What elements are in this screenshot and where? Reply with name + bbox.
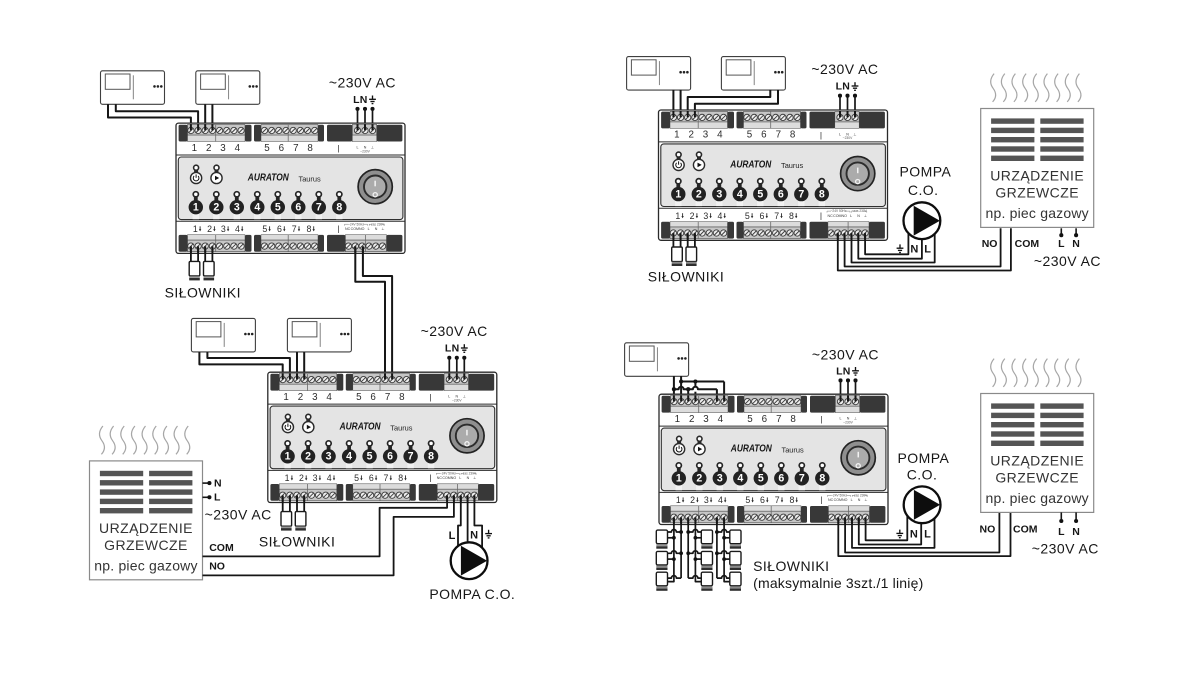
svg-text:~24V 50Hz: ~24V 50Hz (831, 209, 847, 213)
svg-text:L: L (448, 395, 450, 399)
svg-text:7: 7 (408, 451, 414, 463)
svg-text:L: L (214, 492, 221, 504)
svg-text:4: 4 (717, 211, 722, 221)
svg-text:1: 1 (676, 495, 681, 505)
svg-text:POMPA C.O.: POMPA C.O. (429, 586, 515, 602)
svg-text:1: 1 (193, 224, 198, 234)
svg-text:8: 8 (307, 143, 313, 154)
svg-text:5: 5 (758, 473, 764, 485)
svg-text:GRZEWCZE: GRZEWCZE (995, 469, 1079, 485)
svg-text:3: 3 (326, 451, 332, 463)
svg-text:NO: NO (842, 214, 848, 218)
svg-text:1: 1 (675, 188, 681, 200)
svg-text:2: 2 (207, 224, 212, 234)
svg-text:7: 7 (775, 495, 780, 505)
svg-text:Taurus: Taurus (390, 423, 412, 432)
svg-text:N: N (214, 477, 222, 489)
svg-text:NO: NO (359, 227, 365, 231)
svg-text:N: N (1072, 238, 1080, 250)
svg-text:~230V AC: ~230V AC (811, 61, 878, 77)
svg-text:4: 4 (235, 224, 240, 234)
svg-text:3: 3 (704, 495, 709, 505)
svg-text:POMPA: POMPA (898, 450, 950, 466)
svg-text:np. piec gazowy: np. piec gazowy (94, 558, 197, 574)
svg-text:4: 4 (254, 202, 260, 214)
svg-text:2: 2 (696, 473, 702, 485)
svg-text:5: 5 (747, 130, 753, 141)
svg-text:7: 7 (384, 473, 389, 483)
svg-text:COM: COM (442, 476, 450, 480)
svg-text:L: L (850, 214, 852, 218)
svg-text:3: 3 (234, 202, 240, 214)
svg-text:7: 7 (774, 211, 779, 221)
svg-text:5: 5 (757, 188, 763, 200)
svg-text:(maksymalnie 3szt./1 linię): (maksymalnie 3szt./1 linię) (753, 575, 923, 591)
svg-text:COM: COM (1015, 238, 1040, 250)
svg-text:np. piec gazowy: np. piec gazowy (985, 490, 1088, 506)
svg-text:N: N (858, 498, 861, 502)
svg-text:6: 6 (778, 188, 784, 200)
svg-text:~24V 50Hz: ~24V 50Hz (348, 222, 364, 226)
svg-text:4: 4 (737, 473, 743, 485)
svg-text:3: 3 (313, 473, 318, 483)
svg-text:L: L (449, 530, 456, 542)
svg-text:|: | (429, 473, 431, 483)
svg-text:SIŁOWNIKI: SIŁOWNIKI (165, 284, 241, 300)
svg-text:~230V AC: ~230V AC (421, 323, 488, 339)
svg-text:5: 5 (354, 473, 359, 483)
svg-text:~24V 50Hz: ~24V 50Hz (440, 471, 456, 475)
svg-text:AURATON: AURATON (729, 159, 772, 170)
svg-text:5: 5 (264, 143, 270, 154)
svg-text:Taurus: Taurus (782, 445, 804, 454)
svg-text:URZĄDZENIE: URZĄDZENIE (99, 520, 193, 536)
svg-text:N: N (910, 528, 918, 540)
svg-text:N: N (857, 214, 860, 218)
svg-text:L: L (839, 132, 841, 136)
svg-text:~230V: ~230V (843, 136, 853, 140)
svg-text:1: 1 (674, 130, 679, 141)
svg-text:4: 4 (235, 143, 241, 154)
svg-text:8: 8 (789, 211, 794, 221)
svg-text:4: 4 (717, 130, 723, 141)
svg-text:6: 6 (778, 473, 784, 485)
svg-text:2: 2 (298, 392, 303, 403)
svg-text:N: N (1072, 526, 1080, 538)
svg-text:AURATON: AURATON (730, 444, 773, 455)
svg-text:L: L (840, 417, 842, 421)
svg-text:COM: COM (1013, 523, 1038, 535)
svg-text:POMPA: POMPA (900, 163, 952, 179)
svg-text:L: L (357, 145, 359, 149)
svg-text:AURATON: AURATON (247, 173, 290, 184)
svg-text:6: 6 (762, 414, 768, 425)
svg-text:~230V AC: ~230V AC (1034, 253, 1101, 269)
svg-text:NO: NO (980, 523, 996, 535)
svg-text:GRZEWCZE: GRZEWCZE (104, 537, 188, 553)
svg-text:C.O.: C.O. (907, 467, 938, 483)
svg-text:4: 4 (737, 188, 743, 200)
svg-text:4: 4 (718, 495, 723, 505)
svg-text:8: 8 (398, 473, 403, 483)
svg-text:8: 8 (428, 451, 434, 463)
svg-text:COM: COM (209, 542, 234, 554)
svg-text:3: 3 (716, 188, 722, 200)
svg-text:6: 6 (279, 143, 285, 154)
svg-text:1: 1 (192, 143, 197, 154)
svg-text:~230V: ~230V (360, 149, 370, 153)
svg-text:5: 5 (745, 495, 750, 505)
svg-text:L: L (1058, 238, 1065, 250)
svg-text:2: 2 (688, 130, 693, 141)
svg-text:4: 4 (326, 392, 332, 403)
svg-text:NO: NO (209, 560, 225, 572)
svg-text:6: 6 (387, 451, 393, 463)
svg-text:5: 5 (745, 211, 750, 221)
svg-text:7: 7 (316, 202, 322, 214)
svg-text:8: 8 (336, 202, 342, 214)
svg-text:|: | (820, 130, 822, 140)
svg-text:1: 1 (283, 392, 288, 403)
svg-text:COM: COM (833, 214, 841, 218)
svg-text:AURATON: AURATON (339, 422, 382, 433)
svg-text:|: | (337, 143, 339, 153)
svg-text:L: L (368, 227, 370, 231)
svg-text:C.O.: C.O. (908, 182, 939, 198)
svg-text:2: 2 (213, 202, 219, 214)
svg-text:7: 7 (798, 188, 804, 200)
svg-text:L: L (924, 243, 931, 255)
svg-text:6: 6 (760, 211, 765, 221)
svg-text:Taurus: Taurus (299, 174, 321, 183)
svg-text:2: 2 (690, 211, 695, 221)
svg-text:N: N (470, 530, 478, 542)
svg-text:7: 7 (799, 473, 805, 485)
svg-text:3: 3 (221, 224, 226, 234)
svg-text:COM: COM (834, 498, 842, 502)
svg-text:L: L (1058, 526, 1065, 538)
svg-text:N: N (843, 365, 851, 377)
svg-text:7: 7 (293, 143, 298, 154)
svg-text:N: N (910, 243, 918, 255)
svg-text:7: 7 (776, 130, 781, 141)
svg-text:np. piec gazowy: np. piec gazowy (985, 205, 1088, 221)
svg-text:3: 3 (312, 392, 318, 403)
svg-text:~230V AC: ~230V AC (812, 346, 879, 362)
svg-text:1: 1 (676, 473, 682, 485)
svg-text:SIŁOWNIKI: SIŁOWNIKI (753, 558, 829, 574)
svg-text:3: 3 (220, 143, 226, 154)
svg-text:5: 5 (747, 414, 753, 425)
svg-text:8: 8 (789, 495, 794, 505)
svg-text:5: 5 (367, 451, 373, 463)
svg-text:1: 1 (285, 473, 290, 483)
svg-text:8: 8 (306, 224, 311, 234)
svg-text:6: 6 (370, 392, 376, 403)
svg-text:N: N (360, 94, 368, 106)
svg-text:NO: NO (451, 476, 457, 480)
svg-text:~230V: ~230V (843, 420, 853, 424)
svg-text:6: 6 (761, 130, 767, 141)
svg-text:8: 8 (819, 188, 825, 200)
svg-text:L: L (459, 476, 461, 480)
svg-text:8: 8 (399, 392, 405, 403)
svg-text:4: 4 (327, 473, 332, 483)
svg-text:|: | (820, 211, 822, 221)
svg-text:~230V AC: ~230V AC (329, 75, 396, 91)
svg-text:~230V: ~230V (452, 398, 462, 402)
svg-text:|: | (820, 414, 822, 424)
svg-text:1: 1 (193, 202, 199, 214)
svg-text:5: 5 (275, 202, 281, 214)
svg-text:URZĄDZENIE: URZĄDZENIE (990, 168, 1084, 184)
svg-text:6: 6 (295, 202, 301, 214)
svg-text:1: 1 (675, 211, 680, 221)
svg-text:COM: COM (351, 227, 359, 231)
svg-text:4: 4 (718, 414, 724, 425)
svg-text:L: L (924, 528, 931, 540)
svg-text:|: | (429, 392, 431, 402)
svg-text:2: 2 (206, 143, 211, 154)
svg-text:N: N (375, 227, 378, 231)
svg-text:2: 2 (305, 451, 311, 463)
svg-text:3: 3 (703, 130, 709, 141)
svg-text:Taurus: Taurus (781, 161, 803, 170)
svg-text:7: 7 (385, 392, 390, 403)
svg-text:NO: NO (982, 238, 998, 250)
svg-text:1: 1 (675, 414, 680, 425)
svg-text:L: L (851, 498, 853, 502)
svg-text:8: 8 (790, 414, 796, 425)
svg-text:SIŁOWNIKI: SIŁOWNIKI (259, 533, 335, 549)
svg-text:6: 6 (369, 473, 374, 483)
svg-text:~24V 50Hz: ~24V 50Hz (831, 493, 847, 497)
svg-text:8: 8 (819, 473, 825, 485)
svg-text:1: 1 (285, 451, 291, 463)
svg-text:2: 2 (299, 473, 304, 483)
svg-text:7: 7 (776, 414, 781, 425)
svg-text:N: N (842, 81, 850, 93)
svg-text:2: 2 (696, 188, 702, 200)
svg-text:URZĄDZENIE: URZĄDZENIE (990, 453, 1084, 469)
svg-text:4: 4 (346, 451, 352, 463)
svg-text:~230V AC: ~230V AC (1032, 540, 1099, 556)
svg-text:GRZEWCZE: GRZEWCZE (995, 184, 1079, 200)
svg-text:|: | (337, 224, 339, 234)
svg-text:~230V AC: ~230V AC (205, 507, 272, 523)
svg-text:N: N (452, 343, 460, 355)
svg-text:6: 6 (760, 495, 765, 505)
svg-text:2: 2 (690, 495, 695, 505)
svg-text:|: | (820, 495, 822, 505)
svg-text:6: 6 (277, 224, 282, 234)
svg-text:NO: NO (842, 498, 848, 502)
svg-text:N: N (467, 476, 470, 480)
svg-text:3: 3 (703, 414, 709, 425)
svg-text:2: 2 (689, 414, 694, 425)
svg-text:3: 3 (703, 211, 708, 221)
svg-text:SIŁOWNIKI: SIŁOWNIKI (648, 268, 724, 284)
svg-text:5: 5 (356, 392, 362, 403)
svg-text:3: 3 (717, 473, 723, 485)
svg-text:7: 7 (292, 224, 297, 234)
svg-text:8: 8 (790, 130, 796, 141)
svg-text:5: 5 (262, 224, 267, 234)
